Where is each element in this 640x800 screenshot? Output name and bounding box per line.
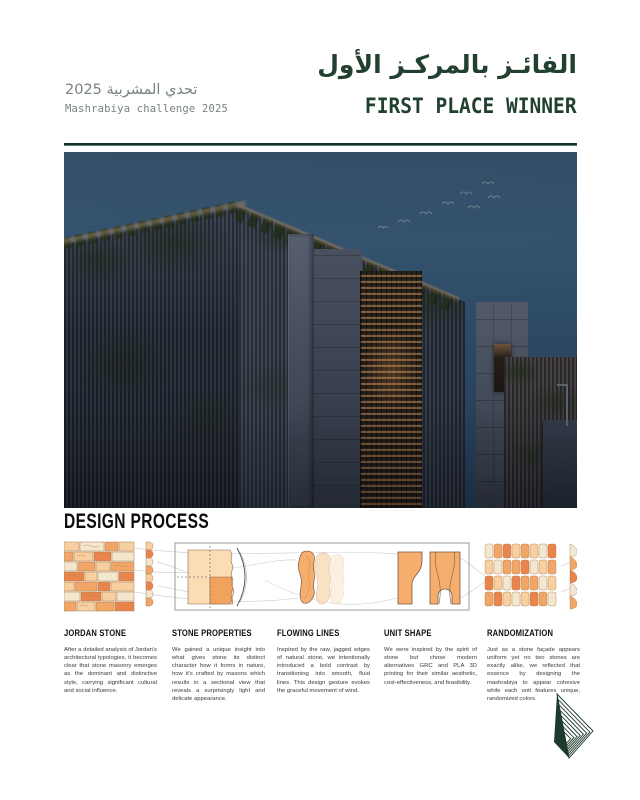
poster-page: تحدي المشربية 2025 Mashrabiya challenge … [0,0,640,800]
background-building [542,420,577,508]
stone-pillar [288,234,314,508]
striped-pyramid-logo-icon [551,692,595,762]
step-body: We gained a unique insight into what giv… [172,646,265,703]
event-title-english: Mashrabiya challenge 2025 [65,103,228,115]
award-title-english: FIRST PLACE WINNER [365,94,577,118]
building-left-facade [64,207,240,508]
step-flowing-lines: FLOWING LINES Inspired by the raw, jagge… [277,628,370,695]
randomization-grid-diagram [485,544,556,606]
stone-strip-diagram [146,542,153,606]
step-label: FLOWING LINES [277,628,351,639]
lit-mashrabiya-screen [360,271,422,508]
unit-shape-diagram [398,552,460,604]
step-body: After a detailed analysis of Jordan's ar… [64,646,157,695]
flowing-lines-diagram [298,551,344,604]
header-divider-rule [64,143,577,146]
randomized-profile-strip-diagram [570,544,577,609]
step-label: JORDAN STONE [64,628,138,639]
design-process-diagram [64,540,577,616]
step-body: We were inspired by the spirit of stone … [384,646,477,687]
step-label: UNIT SHAPE [384,628,458,639]
design-process-title: DESIGN PROCESS [64,510,209,534]
step-stone-properties: STONE PROPERTIES We gained a unique insi… [172,628,265,703]
step-label: RANDOMIZATION [487,628,561,639]
street-lamp-pole [566,384,568,426]
street-lamp-arm [557,384,567,386]
step-label: STONE PROPERTIES [172,628,246,639]
birds-icon [364,178,514,234]
stone-frame [314,249,362,508]
step-unit-shape: UNIT SHAPE We were inspired by the spiri… [384,628,477,687]
step-jordan-stone: JORDAN STONE After a detailed analysis o… [64,628,157,695]
stone-wall-diagram [64,542,134,611]
award-title-arabic: الفائـز بالمركـز الأول [317,50,577,79]
event-title-arabic: تحدي المشربية 2025 [65,82,197,98]
hero-render-image [64,152,577,508]
step-body: Inspired by the raw, jagged edges of nat… [277,646,370,695]
